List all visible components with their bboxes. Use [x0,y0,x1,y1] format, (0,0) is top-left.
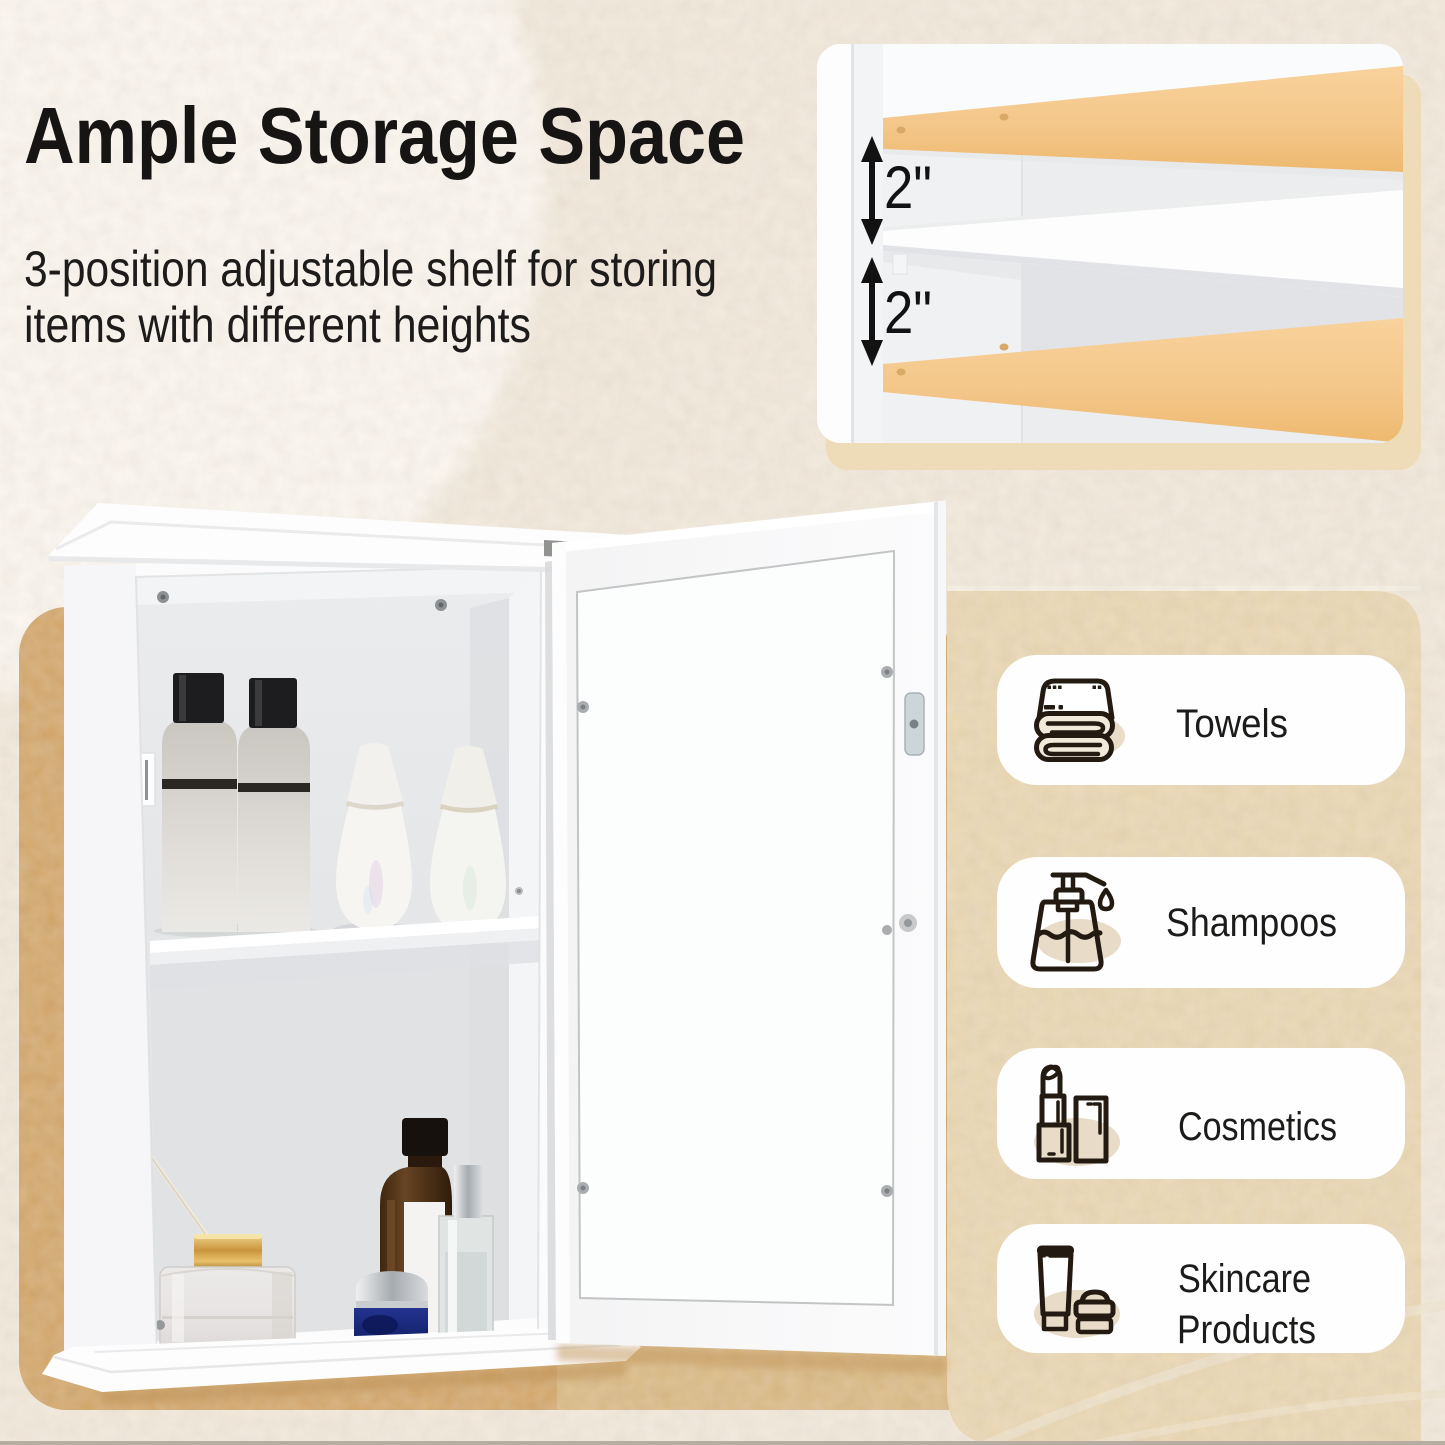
svg-text:items with different heights: items with different heights [24,297,531,353]
svg-text:Ample Storage Space: Ample Storage Space [24,91,745,180]
svg-text:Shampoos: Shampoos [1166,901,1337,945]
svg-text:Products: Products [1177,1308,1316,1352]
svg-text:Cosmetics: Cosmetics [1178,1105,1337,1149]
svg-text:3-position adjustable shelf fo: 3-position adjustable shelf for storing [24,241,717,297]
svg-text:2": 2" [884,154,932,221]
svg-text:2": 2" [884,279,932,346]
svg-text:Towels: Towels [1176,702,1288,746]
svg-text:Skincare: Skincare [1178,1257,1311,1301]
